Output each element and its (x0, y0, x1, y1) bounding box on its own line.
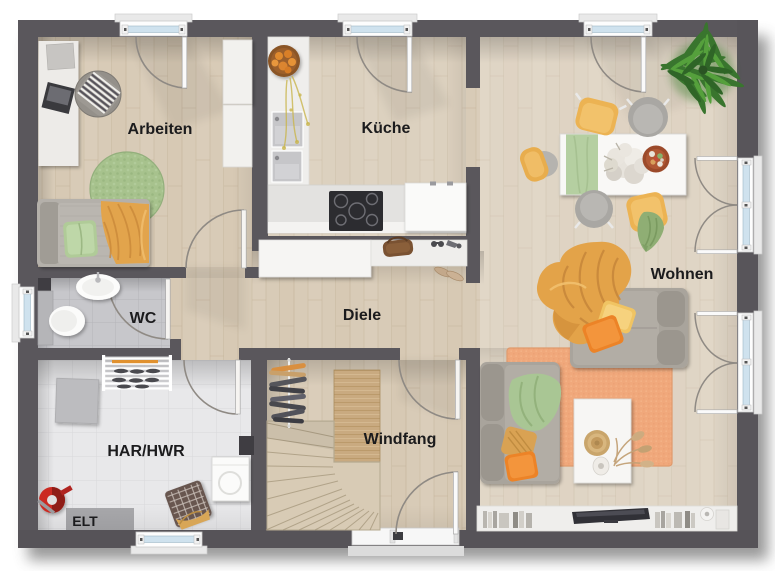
svg-text:HAR/HWR: HAR/HWR (107, 443, 185, 460)
svg-text:Windfang: Windfang (364, 431, 437, 448)
svg-text:WC: WC (130, 310, 157, 327)
svg-text:Küche: Küche (362, 120, 411, 137)
svg-text:Diele: Diele (343, 307, 381, 324)
svg-text:ELT: ELT (72, 513, 98, 529)
svg-text:Arbeiten: Arbeiten (128, 121, 193, 138)
svg-text:Wohnen: Wohnen (651, 266, 714, 283)
